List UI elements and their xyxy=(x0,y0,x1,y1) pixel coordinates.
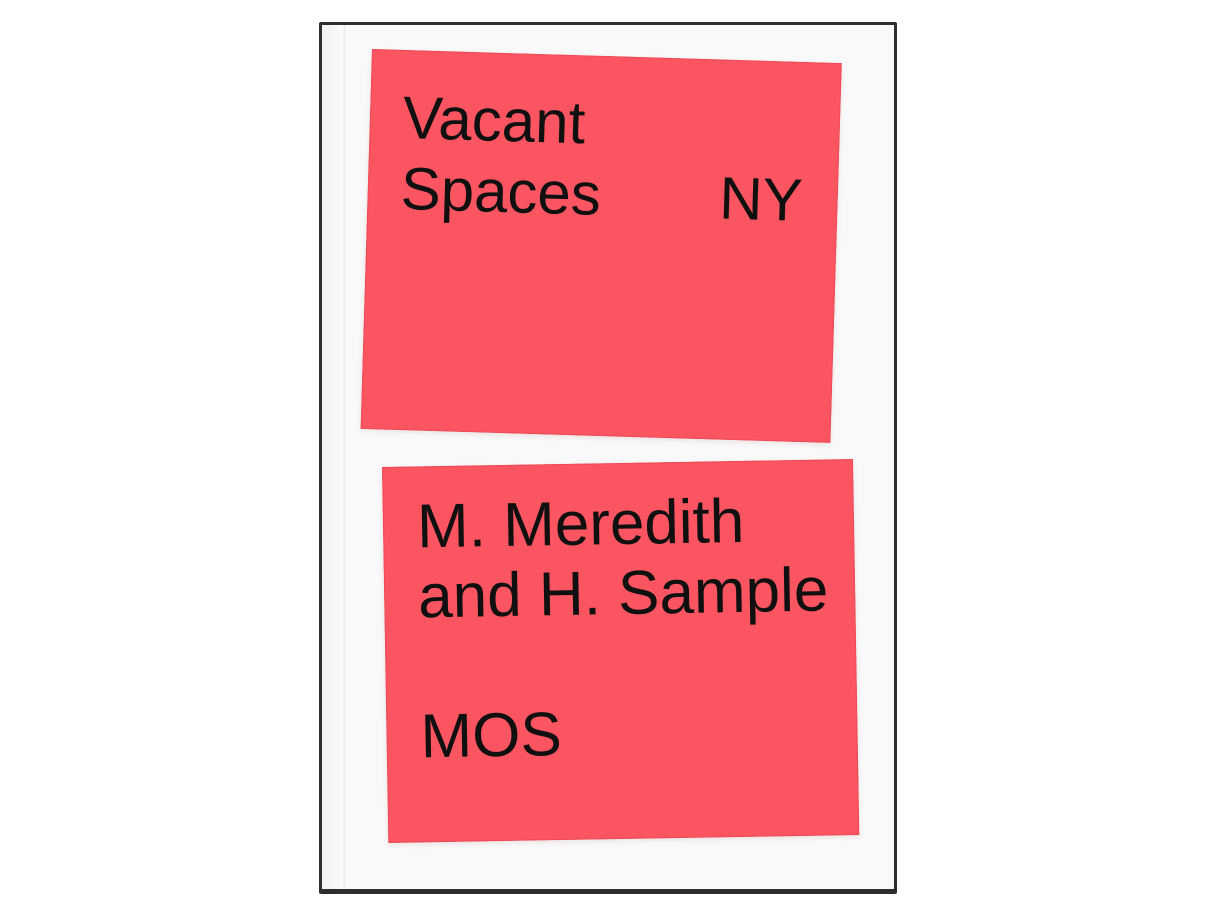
blank-line xyxy=(419,625,830,702)
spine-crease xyxy=(343,25,346,889)
title-panel: Vacant Spaces NY xyxy=(361,49,842,443)
title-line-2: Spaces NY xyxy=(400,153,804,236)
region-label: NY xyxy=(718,163,803,236)
studio-name: MOS xyxy=(420,695,831,772)
author-line-2: and H. Sample xyxy=(418,555,829,632)
author-line-1: M. Meredith xyxy=(416,485,827,562)
product-photo: Vacant Spaces NY M. Meredith and H. Samp… xyxy=(0,0,1217,913)
title-line-1: Vacant xyxy=(402,82,806,165)
book-cover: Vacant Spaces NY M. Meredith and H. Samp… xyxy=(319,22,897,894)
author-panel: M. Meredith and H. Sample MOS xyxy=(382,459,859,843)
title-line-2-text: Spaces xyxy=(400,153,602,230)
